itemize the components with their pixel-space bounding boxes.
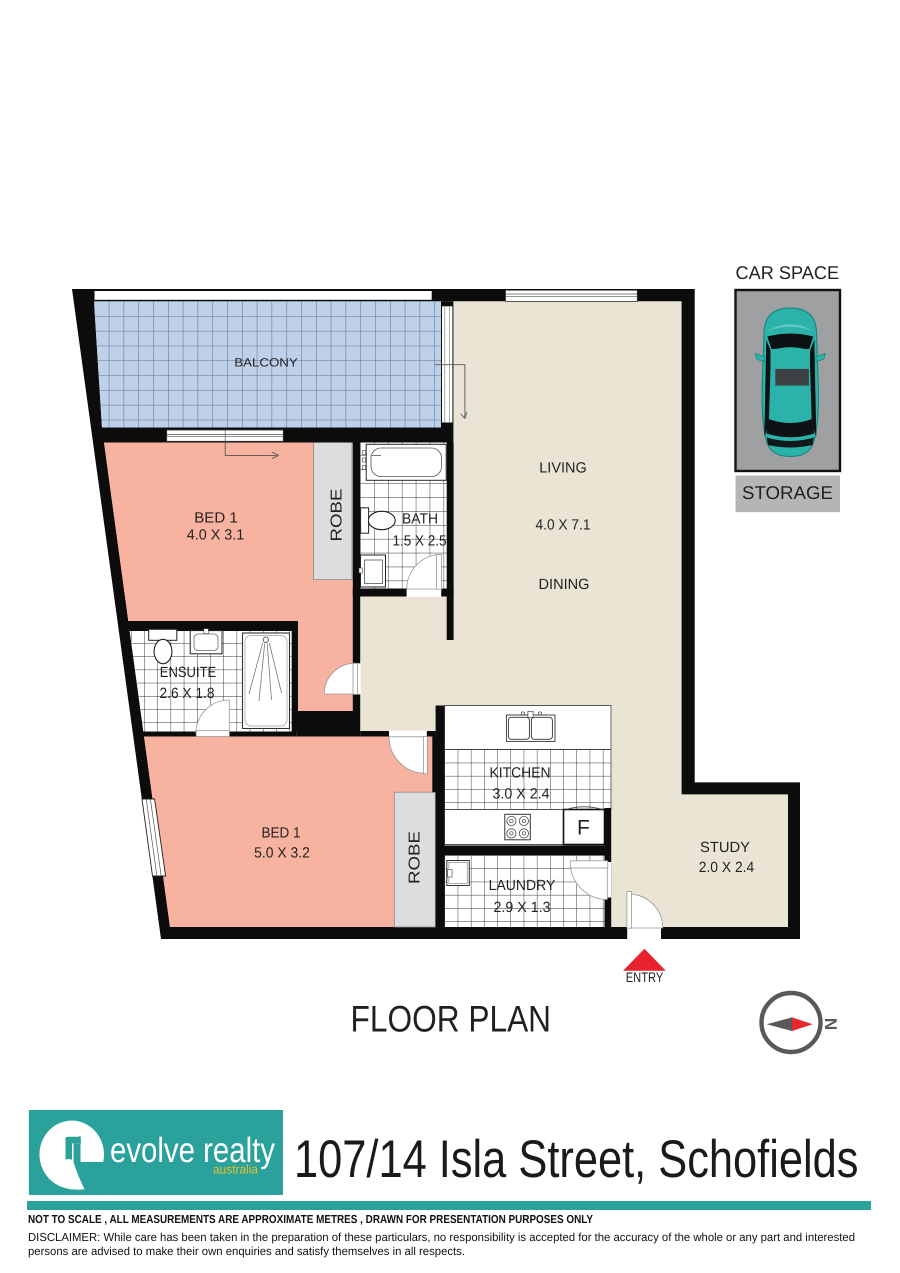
svg-text:5.0 X 3.2: 5.0 X 3.2	[254, 846, 310, 862]
svg-text:KITCHEN: KITCHEN	[490, 766, 551, 782]
svg-text:4.0 X 7.1: 4.0 X 7.1	[536, 518, 591, 534]
svg-text:ROBE: ROBE	[329, 489, 346, 542]
svg-text:2.9 X 1.3: 2.9 X 1.3	[494, 900, 551, 916]
svg-text:BALCONY: BALCONY	[234, 356, 298, 370]
svg-text:BATH: BATH	[402, 512, 438, 528]
svg-text:STUDY: STUDY	[700, 840, 750, 856]
svg-text:F: F	[577, 817, 590, 840]
svg-text:ROBE: ROBE	[407, 831, 424, 884]
svg-text:N: N	[821, 1018, 840, 1030]
svg-text:ENSUITE: ENSUITE	[160, 665, 217, 681]
svg-text:107/14 Isla Street, Schofields: 107/14 Isla Street, Schofields	[294, 1130, 859, 1189]
svg-text:persons are advised to make th: persons are advised to make their own en…	[28, 1245, 465, 1258]
svg-text:ENTRY: ENTRY	[626, 970, 664, 985]
svg-text:DINING: DINING	[539, 577, 590, 593]
svg-text:2.6 X 1.8: 2.6 X 1.8	[160, 686, 215, 702]
svg-text:1.5 X 2.5: 1.5 X 2.5	[393, 533, 447, 549]
svg-text:australia: australia	[213, 1162, 258, 1176]
svg-text:BED 1: BED 1	[194, 510, 238, 526]
svg-text:LAUNDRY: LAUNDRY	[489, 878, 556, 894]
svg-text:NOT TO SCALE , ALL MEASUREMENT: NOT TO SCALE , ALL MEASUREMENTS ARE APPR…	[28, 1213, 593, 1226]
svg-text:DISCLAIMER: While care has be: DISCLAIMER: While care has been taken in…	[28, 1231, 855, 1244]
svg-text:STORAGE: STORAGE	[742, 482, 833, 503]
svg-text:CAR SPACE: CAR SPACE	[736, 262, 840, 283]
svg-text:3.0 X 2.4: 3.0 X 2.4	[493, 786, 550, 802]
svg-text:2.0 X 2.4: 2.0 X 2.4	[699, 860, 755, 876]
svg-text:FLOOR PLAN: FLOOR PLAN	[351, 999, 552, 1040]
svg-text:BED 1: BED 1	[262, 826, 301, 842]
svg-text:LIVING: LIVING	[539, 460, 587, 476]
svg-text:4.0 X 3.1: 4.0 X 3.1	[187, 528, 245, 544]
